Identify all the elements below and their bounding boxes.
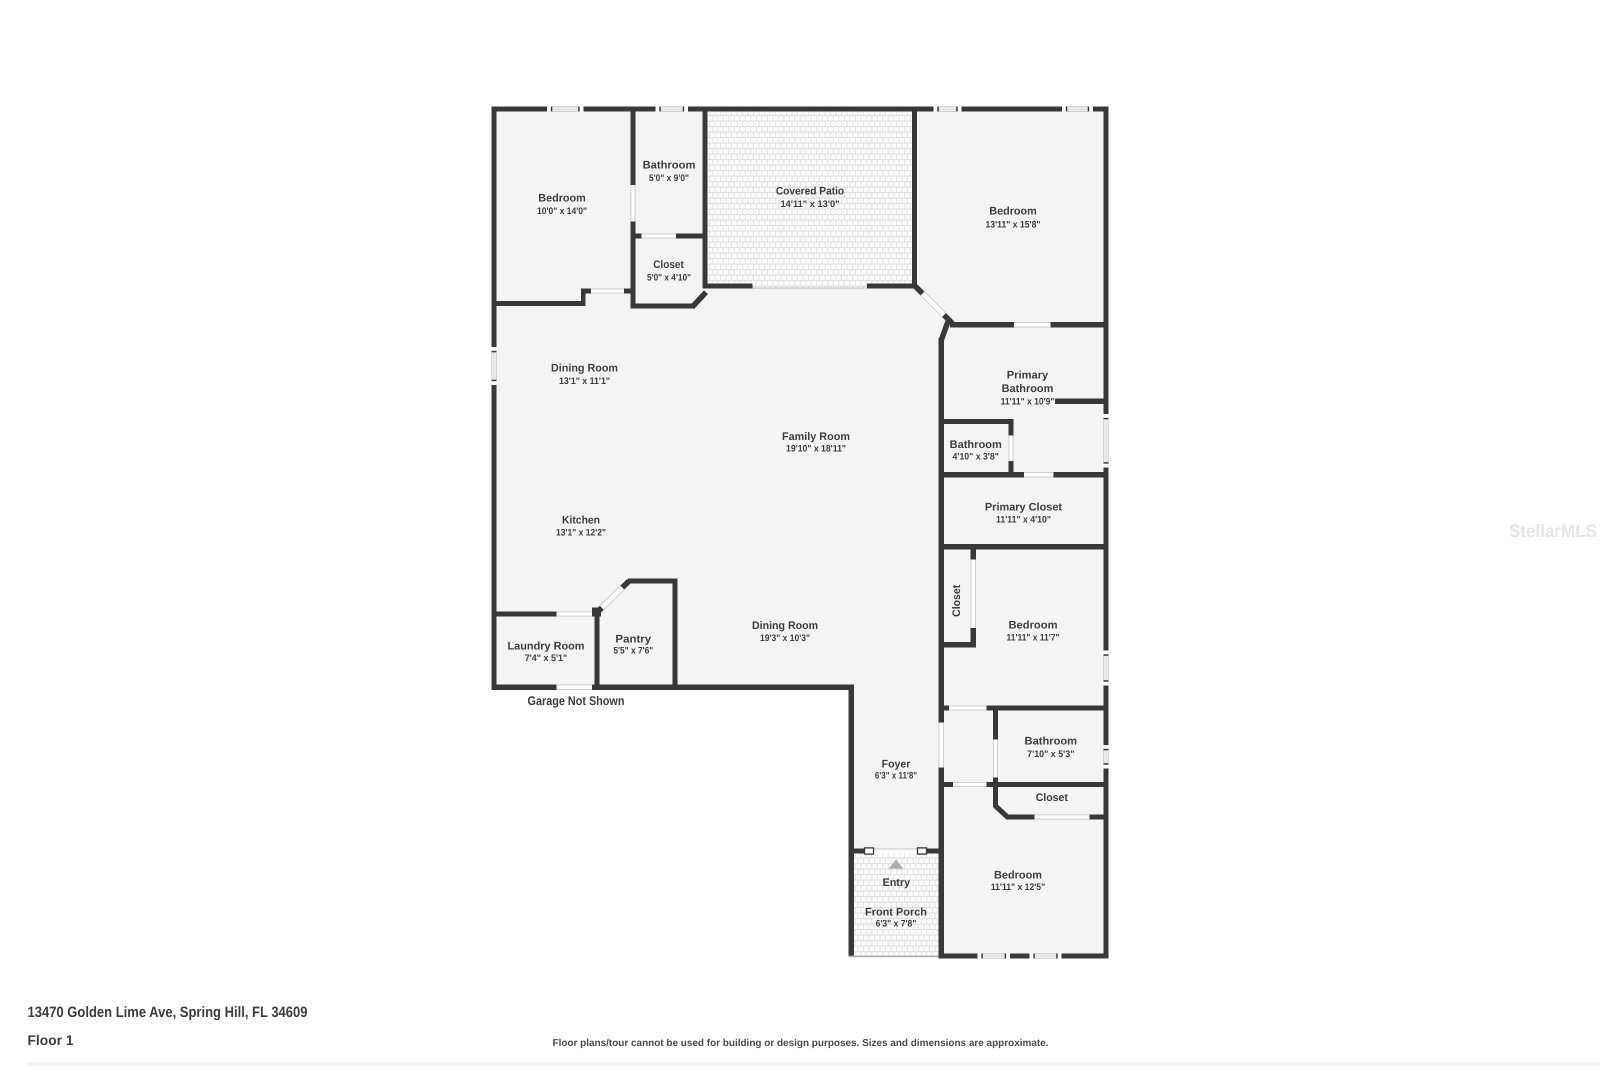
- svg-text:11'11" x 12'5": 11'11" x 12'5": [991, 882, 1045, 893]
- svg-text:10'0" x 14'0": 10'0" x 14'0": [537, 206, 587, 217]
- svg-text:4'10" x 3'8": 4'10" x 3'8": [953, 452, 999, 463]
- svg-text:Garage Not Shown: Garage Not Shown: [528, 694, 625, 708]
- svg-text:13470 Golden Lime Ave, Spring: 13470 Golden Lime Ave, Spring Hill, FL 3…: [28, 1004, 308, 1021]
- svg-text:Bedroom: Bedroom: [989, 205, 1037, 217]
- svg-text:13'1" x 12'2": 13'1" x 12'2": [556, 528, 606, 539]
- svg-text:Primary: Primary: [1007, 370, 1049, 382]
- svg-text:13'11" x 15'8": 13'11" x 15'8": [986, 220, 1041, 231]
- svg-text:Floor 1: Floor 1: [28, 1032, 74, 1048]
- svg-text:Closet: Closet: [1036, 792, 1069, 804]
- svg-text:Bedroom: Bedroom: [1009, 620, 1058, 632]
- svg-text:Closet: Closet: [653, 259, 684, 271]
- svg-text:6'3" x 11'8": 6'3" x 11'8": [875, 770, 917, 781]
- svg-text:Primary Closet: Primary Closet: [985, 502, 1063, 514]
- svg-text:Bedroom: Bedroom: [538, 193, 586, 205]
- svg-text:Dining Room: Dining Room: [752, 620, 818, 632]
- svg-text:Bedroom: Bedroom: [994, 870, 1042, 882]
- svg-text:5'5" x 7'6": 5'5" x 7'6": [613, 646, 653, 657]
- svg-text:13'1" x 11'1": 13'1" x 11'1": [559, 376, 610, 387]
- svg-text:Dining Room: Dining Room: [551, 363, 618, 375]
- svg-text:Entry: Entry: [883, 877, 911, 889]
- svg-text:19'10" x 18'11": 19'10" x 18'11": [786, 444, 846, 455]
- svg-text:7'4" x 5'1": 7'4" x 5'1": [525, 653, 568, 664]
- svg-text:5'0" x 9'0": 5'0" x 9'0": [649, 173, 689, 184]
- svg-text:7'10" x 5'3": 7'10" x 5'3": [1027, 749, 1074, 760]
- svg-text:11'11" x 4'10": 11'11" x 4'10": [996, 515, 1051, 526]
- svg-text:Laundry Room: Laundry Room: [508, 640, 585, 652]
- svg-text:Covered Patio: Covered Patio: [776, 186, 845, 198]
- svg-text:6'3" x 7'8": 6'3" x 7'8": [876, 919, 917, 930]
- svg-text:Bathroom: Bathroom: [1025, 736, 1078, 748]
- svg-text:14'11" x 13'0": 14'11" x 13'0": [781, 199, 840, 210]
- svg-text:Pantry: Pantry: [615, 633, 652, 645]
- svg-text:Bathroom: Bathroom: [1002, 383, 1054, 395]
- svg-text:StellarMLS: StellarMLS: [1509, 521, 1597, 541]
- svg-text:Bathroom: Bathroom: [643, 160, 696, 172]
- svg-text:Front Porch: Front Porch: [865, 907, 927, 919]
- svg-text:19'3" x 10'3": 19'3" x 10'3": [760, 633, 810, 644]
- svg-text:Foyer: Foyer: [882, 758, 911, 770]
- svg-text:5'0" x 4'10": 5'0" x 4'10": [647, 273, 691, 284]
- svg-text:Family Room: Family Room: [782, 431, 850, 443]
- svg-text:Closet: Closet: [951, 584, 963, 616]
- svg-text:11'11" x 10'9": 11'11" x 10'9": [1001, 396, 1055, 407]
- svg-text:Floor plans/tour cannot be use: Floor plans/tour cannot be used for buil…: [553, 1038, 1049, 1049]
- svg-text:Bathroom: Bathroom: [950, 439, 1002, 451]
- svg-text:Kitchen: Kitchen: [562, 515, 600, 527]
- svg-text:11'11" x 11'7": 11'11" x 11'7": [1007, 633, 1060, 644]
